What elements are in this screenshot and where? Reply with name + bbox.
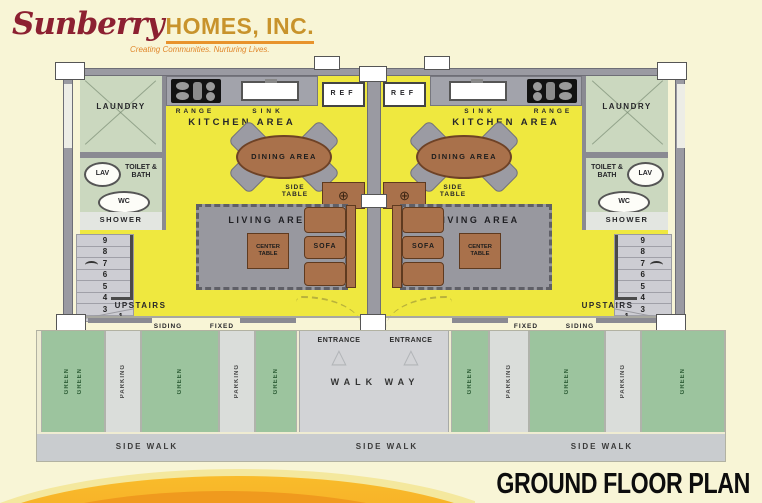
stair-step-number: 8	[103, 247, 107, 256]
lav-label: LAV	[639, 170, 652, 178]
range-burner	[533, 82, 542, 91]
range-burner	[559, 82, 572, 90]
stair-step: 8	[77, 247, 133, 259]
dining-set: DINING AREA	[408, 126, 520, 188]
sofa-cushion: SOFA	[304, 236, 346, 259]
stair-step-number: 5	[641, 282, 645, 291]
stair-step-number: 9	[103, 236, 107, 245]
strip-label: GREEN	[467, 368, 473, 394]
sofa-back	[392, 205, 402, 288]
logo-homes: HOMES, INC.	[166, 13, 315, 44]
unit-right: RANGE SINK REF KITCHEN AREA DINING AREA …	[381, 58, 675, 332]
strip-green: GREEN GREEN	[41, 331, 105, 432]
strip-parking: PARKING	[219, 331, 255, 432]
wc-zone: WC	[80, 190, 162, 212]
kitchen-counter	[166, 76, 318, 106]
logo-script: Sunberry	[12, 6, 164, 42]
strip-parking: PARKING	[105, 331, 141, 432]
right-wall-opening	[677, 84, 685, 148]
lav-fixture: LAV	[84, 162, 121, 187]
entrance-arrow: △	[322, 345, 356, 369]
laundry-room: LAUNDRY	[80, 75, 162, 152]
strip-label: PARKING	[120, 364, 126, 398]
stair-step-number: 9	[641, 236, 645, 245]
range-burner	[176, 82, 189, 90]
ref-label: REF	[331, 90, 357, 98]
entrance-arrow: △	[394, 345, 428, 369]
strip-green: GREEN	[529, 331, 605, 432]
shower-room: SHOWER	[80, 212, 162, 230]
upstairs-label: UPSTAIRS	[98, 301, 183, 310]
stair-step-number: 8	[641, 247, 645, 256]
swoosh	[0, 455, 475, 503]
toilet-bath-room: LAV TOILET & BATH	[586, 158, 668, 190]
shower-label: SHOWER	[586, 216, 668, 225]
stair-step: 5	[615, 281, 671, 293]
stair-step: 9	[615, 235, 671, 247]
sofa-cushion: SOFA	[402, 236, 444, 259]
site-area: GREEN GREEN PARKING GREEN PARKING GREEN …	[36, 330, 726, 462]
strip-green: GREEN	[451, 331, 489, 432]
dining-area-label: DINING AREA	[251, 153, 317, 162]
dining-table: DINING AREA	[236, 135, 332, 179]
lav-label: LAV	[96, 170, 109, 178]
stair-step: 7	[615, 258, 671, 270]
stair-turn-arrow	[650, 261, 663, 269]
side-table-label: SIDE TABLE	[429, 184, 477, 199]
strip-parking: PARKING	[605, 331, 641, 432]
range-label: RANGE	[526, 108, 580, 115]
wc-label: WC	[618, 198, 630, 206]
center-table-label: CENTER TABLE	[460, 244, 500, 257]
center-table: CENTER TABLE	[247, 233, 289, 269]
entrance-label: ENTRANCE	[308, 337, 370, 345]
sofa-cushion	[304, 207, 346, 233]
sink-faucet	[265, 79, 277, 83]
side-table-icon: ⊕	[399, 189, 410, 202]
wall-post	[314, 56, 340, 70]
strip-label: PARKING	[620, 364, 626, 398]
stair-stringer	[130, 235, 133, 299]
side-table-label: SIDE TABLE	[271, 184, 319, 199]
ref-appliance: REF	[322, 82, 365, 107]
sofa-back	[346, 205, 356, 288]
strip-label: GREEN	[564, 368, 570, 394]
strip-green: GREEN	[255, 331, 297, 432]
range-burner	[559, 92, 572, 100]
sofa-label: SOFA	[313, 243, 336, 251]
range-burner	[546, 82, 555, 100]
strip-label: GREEN	[273, 368, 279, 394]
sink-fixture	[241, 81, 299, 101]
window-bar	[596, 318, 660, 323]
logo-tagline: Creating Communities. Nurturing Lives.	[130, 45, 314, 54]
wall-post	[424, 56, 450, 70]
stair-step: 9	[77, 235, 133, 247]
range-burner	[193, 82, 202, 100]
strip-green: GREEN	[141, 331, 219, 432]
strip-label: GREEN	[680, 368, 686, 394]
toilet-bath-room: LAV TOILET & BATH	[80, 158, 162, 190]
stair-step: 6	[615, 270, 671, 282]
toilet-bath-label: TOILET & BATH	[585, 164, 629, 180]
strip-parking: PARKING	[489, 331, 529, 432]
ref-appliance: REF	[383, 82, 426, 107]
left-wall-opening	[64, 84, 72, 148]
sink-faucet	[471, 79, 483, 83]
window-bar	[452, 318, 508, 323]
strip-label: PARKING	[234, 364, 240, 398]
sidewalk-label: SIDE WALK	[97, 442, 197, 451]
logo: Sunberry HOMES, INC. Creating Communitie…	[12, 6, 314, 54]
center-table: CENTER TABLE	[459, 233, 501, 269]
stair-step-number: 7	[641, 259, 645, 268]
laundry-room: LAUNDRY	[586, 75, 668, 152]
entrance-label: ENTRANCE	[380, 337, 442, 345]
stair-stringer	[615, 235, 618, 299]
stair-step: 6	[77, 270, 133, 282]
range-label: RANGE	[168, 108, 222, 115]
stair-stringer	[111, 297, 133, 300]
stair-step: 5	[77, 281, 133, 293]
side-table-icon: ⊕	[338, 189, 349, 202]
stair-step-number: 6	[641, 270, 645, 279]
strip-label: GREEN	[177, 368, 183, 394]
page: Sunberry HOMES, INC. Creating Communitie…	[0, 0, 762, 503]
range-burner	[206, 92, 215, 101]
kitchen-counter	[430, 76, 582, 106]
range-appliance	[527, 79, 577, 103]
center-table-label: CENTER TABLE	[248, 244, 288, 257]
dining-table: DINING AREA	[416, 135, 512, 179]
page-title: GROUND FLOOR PLAN	[496, 468, 750, 501]
wc-fixture: WC	[598, 191, 650, 214]
service-rooms: LAUNDRY LAV TOILET & BATH WC SHOWER	[582, 75, 668, 230]
walkway: ENTRANCE ENTRANCE △ △ WALK WAY	[299, 331, 449, 432]
laundry-label: LAUNDRY	[586, 102, 668, 111]
sofa-label: SOFA	[411, 243, 434, 251]
shower-label: SHOWER	[80, 216, 162, 225]
wc-label: WC	[118, 198, 130, 206]
lav-fixture: LAV	[627, 162, 664, 187]
dining-area-label: DINING AREA	[431, 153, 497, 162]
logo-row: Sunberry HOMES, INC.	[12, 6, 314, 44]
strip-label: GREEN	[64, 368, 70, 394]
sink-label: SINK	[450, 108, 510, 115]
upstairs-label: UPSTAIRS	[565, 301, 650, 310]
sofa-cushion	[402, 262, 444, 286]
wc-fixture: WC	[98, 191, 150, 214]
sofa-cushion	[304, 262, 346, 286]
range-burner	[176, 92, 189, 100]
laundry-label: LAUNDRY	[80, 102, 162, 111]
wall-post	[657, 62, 687, 80]
dining-set: DINING AREA	[228, 126, 340, 188]
ref-label: REF	[392, 90, 418, 98]
stair-stringer	[615, 297, 637, 300]
range-burner	[533, 92, 542, 101]
sink-label: SINK	[238, 108, 298, 115]
sofa-cushion	[402, 207, 444, 233]
sink-fixture	[449, 81, 507, 101]
stair-step: 7	[77, 258, 133, 270]
range-appliance	[171, 79, 221, 103]
strip-green: GREEN	[641, 331, 725, 432]
strip-label: GREEN	[77, 368, 83, 394]
service-rooms: LAUNDRY LAV TOILET & BATH WC SHOWER	[80, 75, 166, 230]
wall-post	[361, 194, 387, 208]
stair-step-number: 5	[103, 282, 107, 291]
range-burner	[206, 82, 215, 91]
sidewalk-label: SIDE WALK	[552, 442, 652, 451]
wall-post	[359, 66, 387, 82]
stair-step: 8	[615, 247, 671, 259]
sidewalk-label: SIDE WALK	[337, 442, 437, 451]
wc-zone: WC	[586, 190, 668, 212]
stair-turn-arrow	[85, 261, 98, 269]
wall-post	[55, 62, 85, 80]
unit-left: RANGE SINK REF KITCHEN AREA DINING AREA …	[73, 58, 367, 332]
stair-step-number: 6	[103, 270, 107, 279]
walkway-label: WALK WAY	[300, 377, 450, 387]
strip-label: PARKING	[506, 364, 512, 398]
stair-step-number: 7	[103, 259, 107, 268]
toilet-bath-label: TOILET & BATH	[119, 164, 163, 180]
shower-room: SHOWER	[586, 212, 668, 230]
window-bar	[240, 318, 296, 323]
